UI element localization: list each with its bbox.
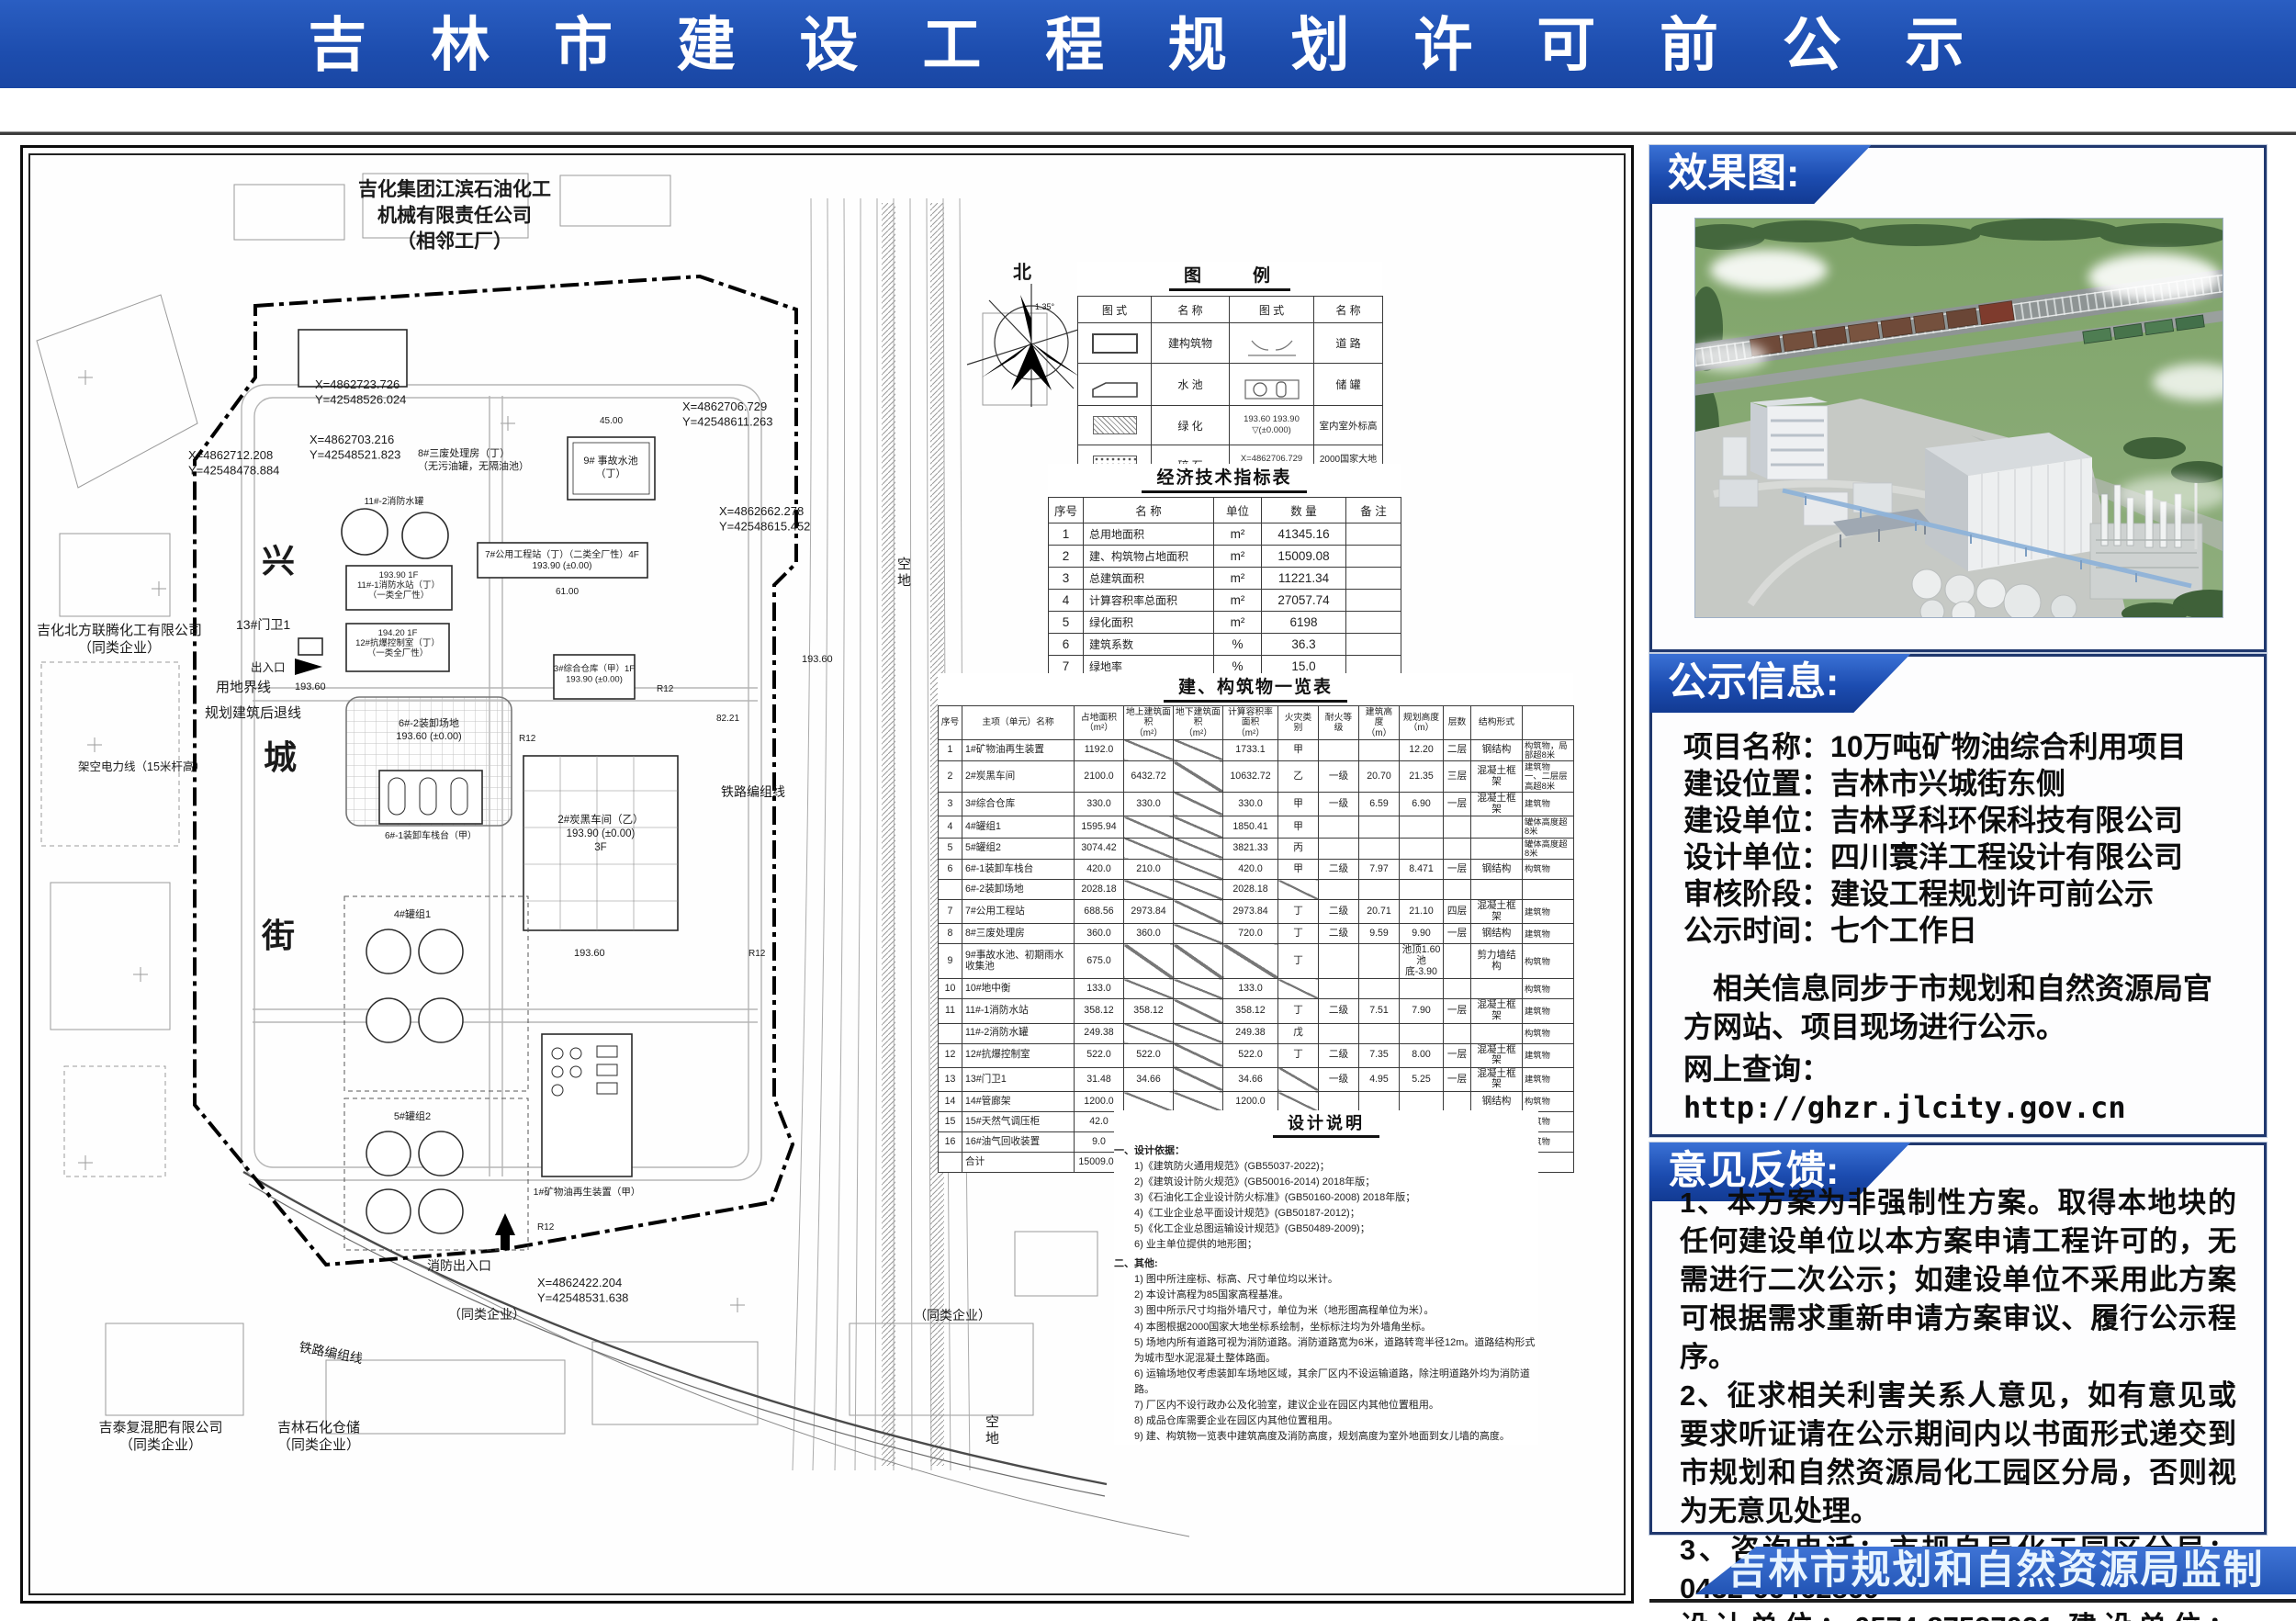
table-row: 99#事故水池、初期雨水收集池675.0丁池顶1.60 池底-3.90剪力墙结构… <box>939 944 1574 979</box>
dim-label: 61.00 <box>556 587 579 597</box>
table-cell: 6.59 <box>1359 792 1400 816</box>
design-notes: 一、设计依据： 1)《建筑防火通用规范》(GB55037-2022)；2)《建筑… <box>1114 1143 1538 1445</box>
table-cell: 一级 <box>1319 1067 1359 1091</box>
table-cell <box>1124 979 1174 999</box>
table-cell: 钢结构 <box>1471 1092 1523 1112</box>
table-cell: 1 <box>1049 523 1084 546</box>
table-cell: 建筑物 <box>1523 999 1574 1023</box>
table-cell: 720.0 <box>1223 924 1278 944</box>
column-header: 建筑高度 （m） <box>1359 706 1400 740</box>
field-label: 建设位置： <box>1683 765 1830 802</box>
column-header: 序号 <box>1049 498 1084 523</box>
rendering-illustration <box>1695 219 2223 617</box>
building-list-table: 序号主项（单元）名称占地面积 （m²）地上建筑面积 （m²）地下建筑面积 （m²… <box>938 705 1574 1173</box>
table-cell: 2973.84 <box>1124 900 1174 924</box>
greenery-symbol <box>1093 416 1137 434</box>
url-label: 网上查询： <box>1683 1053 1830 1086</box>
coordinate-label: X=4862422.204Y=42548531.638 <box>537 1276 628 1304</box>
feedback-panel: 意见反馈: 1、本方案为非强制性方案。取得本地块的任何建设单位以本方案申请工程许… <box>1649 1143 2267 1535</box>
table-cell: 一级 <box>1319 792 1359 816</box>
table-cell <box>1319 1092 1359 1112</box>
main-title-banner: 吉 林 市 建 设 工 程 规 划 许 可 前 公 示 <box>0 0 2296 88</box>
table-cell: 675.0 <box>1075 944 1124 979</box>
table-cell: 混凝土框架 <box>1471 1067 1523 1091</box>
table-cell <box>1444 816 1471 838</box>
column-header: 计算容积率面积 （m²） <box>1223 706 1278 740</box>
info-row: 设计单位： 四川寰洋工程设计有限公司 <box>1683 839 2234 875</box>
table-cell <box>939 880 962 900</box>
table-row: 4计算容积率总面积m²27057.74 <box>1049 590 1401 612</box>
table-cell <box>1124 1092 1174 1112</box>
table-cell: 二级 <box>1319 924 1359 944</box>
table-cell <box>1359 880 1400 900</box>
table-cell: 三层 <box>1444 761 1471 793</box>
building-label: 4#罐组1 <box>394 907 431 920</box>
table-cell: 14 <box>939 1092 962 1112</box>
table-cell <box>1174 1043 1223 1067</box>
table-cell: 3 <box>1049 568 1084 590</box>
coordinate-label: X=4862703.216Y=42548521.823 <box>310 433 400 461</box>
table-cell <box>1278 880 1319 900</box>
info-row: 公示时间： 七个工作日 <box>1683 912 2234 949</box>
legend-header: 名 称 <box>1152 297 1230 323</box>
column-header: 名 称 <box>1084 498 1214 523</box>
table-cell: 钢结构 <box>1471 860 1523 880</box>
elevation-symbol: 193.60 193.90 ▽(±0.000) <box>1232 414 1311 436</box>
tank-symbol <box>1244 377 1300 401</box>
table-cell <box>1346 568 1401 590</box>
building-label: 8#三废处理房（丁）（无污油罐，无隔油池） <box>418 446 529 472</box>
table-cell: 2973.84 <box>1223 900 1278 924</box>
table-cell <box>1346 590 1401 612</box>
table-cell: 358.12 <box>1124 999 1174 1023</box>
table-cell: 建筑物 <box>1523 1043 1574 1067</box>
table-row: 88#三废处理房360.0360.0720.0丁二级9.599.90一层钢结构建… <box>939 924 1574 944</box>
info-panel: 公示信息: 项目名称： 10万吨矿物油综合利用项目 建设位置： 吉林市兴城街东侧… <box>1649 654 2267 1137</box>
column-header: 序号 <box>939 706 962 740</box>
table-row: 2建、构筑物占地面积m²15009.08 <box>1049 546 1401 568</box>
table-cell <box>939 1023 962 1043</box>
table-cell: 建筑物 一、二层层高超8米 <box>1523 761 1574 793</box>
table-cell <box>1319 816 1359 838</box>
table-cell <box>1124 838 1174 859</box>
table-cell: 20.70 <box>1359 761 1400 793</box>
table-cell <box>1471 838 1523 859</box>
table-cell: 混凝土框架 <box>1471 999 1523 1023</box>
table-cell: 一级 <box>1319 761 1359 793</box>
table-cell: 建筑物 <box>1523 924 1574 944</box>
table-cell: 1192.0 <box>1075 739 1124 760</box>
table-cell <box>1124 816 1174 838</box>
table-cell: 10632.72 <box>1223 761 1278 793</box>
table-cell: 5 <box>1049 612 1084 634</box>
column-header: 结构形式 <box>1471 706 1523 740</box>
road-symbol <box>1244 337 1300 359</box>
table-cell: 11#-2消防水罐 <box>962 1023 1075 1043</box>
table-cell: 330.0 <box>1223 792 1278 816</box>
legend-title: 图 例 <box>1077 262 1382 287</box>
table-cell <box>1359 1092 1400 1112</box>
table-cell: 8.471 <box>1400 860 1444 880</box>
table-row: 1212#抗爆控制室522.0522.0522.0丁二级7.358.00一层混凝… <box>939 1043 1574 1067</box>
table-cell <box>1174 860 1223 880</box>
table-cell: 4 <box>1049 590 1084 612</box>
table-cell <box>1400 1023 1444 1043</box>
legend-block: 图 例 图 式 名 称 图 式 名 称 建构筑物 <box>1077 262 1382 485</box>
table-cell: 建筑物 <box>1523 900 1574 924</box>
north-compass <box>967 284 1096 407</box>
building-table-title: 建、构筑物一览表 <box>938 673 1573 698</box>
table-cell: 34.66 <box>1223 1067 1278 1091</box>
table-cell <box>1400 880 1444 900</box>
table-cell <box>1124 944 1174 979</box>
list-item: 2) 本设计高程为85国家高程基准。 <box>1114 1288 1538 1303</box>
table-row: 1010#地中衡133.0133.0构筑物 <box>939 979 1574 999</box>
table-cell: 7.51 <box>1359 999 1400 1023</box>
table-cell <box>1444 979 1471 999</box>
neighbor-factory-label: 吉化集团江滨石油化工机械有限责任公司（相邻工厂） <box>358 178 551 253</box>
table-cell <box>1174 816 1223 838</box>
table-cell: 20.71 <box>1359 900 1400 924</box>
table-cell: 249.38 <box>1075 1023 1124 1043</box>
table-cell <box>1319 944 1359 979</box>
table-cell: 13#门卫1 <box>962 1067 1075 1091</box>
table-cell: m² <box>1214 523 1262 546</box>
table-row: 66#-1装卸车栈台420.0210.0420.0甲二级7.978.471一层钢… <box>939 860 1574 880</box>
field-value: 吉林孚科环保科技有限公司 <box>1830 802 2183 839</box>
table-cell: 4 <box>939 816 962 838</box>
footer-underline <box>1649 1599 2296 1603</box>
table-cell: 一层 <box>1444 792 1471 816</box>
table-cell <box>1359 944 1400 979</box>
table-cell: 丁 <box>1278 944 1319 979</box>
dim-label: 82.21 <box>716 714 739 724</box>
table-cell: m² <box>1214 546 1262 568</box>
table-cell <box>1359 739 1400 760</box>
table-cell: 41345.16 <box>1262 523 1346 546</box>
table-cell: 15009.08 <box>1262 546 1346 568</box>
table-cell: 330.0 <box>1124 792 1174 816</box>
table-cell: m² <box>1214 590 1262 612</box>
table-cell: 3821.33 <box>1223 838 1278 859</box>
fire-exit-label: 消防出入口 <box>427 1258 491 1273</box>
table-cell: 12#抗爆控制室 <box>962 1043 1075 1067</box>
column-header: 规划高度 （m） <box>1400 706 1444 740</box>
table-cell: 7 <box>939 900 962 924</box>
field-label: 审核阶段： <box>1683 875 1830 912</box>
table-cell <box>1346 634 1401 656</box>
table-cell <box>1278 1092 1319 1112</box>
table-cell: 池顶1.60 池底-3.90 <box>1400 944 1444 979</box>
company-label: 吉林石化仓储（同类企业） <box>277 1420 360 1453</box>
table-cell: 11#-1消防水站 <box>962 999 1075 1023</box>
table-cell: 一层 <box>1444 924 1471 944</box>
table-cell <box>1444 944 1471 979</box>
notes-heading: 二、其他: <box>1114 1256 1538 1272</box>
list-item: 9) 建、构筑物一览表中建筑高度及消防高度，规划高度为室外地面到女儿墙的高度。 <box>1114 1429 1538 1445</box>
north-angle: 1.35° <box>1035 302 1055 311</box>
table-cell <box>1174 944 1223 979</box>
table-cell: 210.0 <box>1124 860 1174 880</box>
table-cell: 丁 <box>1278 1043 1319 1067</box>
table-cell: 14#管廊架 <box>962 1092 1075 1112</box>
table-cell: 9#事故水池、初期雨水收集池 <box>962 944 1075 979</box>
table-cell: 12.20 <box>1400 739 1444 760</box>
dim-label: R12 <box>748 949 766 959</box>
coordinate-label: X=4862662.278Y=42548615.452 <box>719 504 810 533</box>
table-cell: 6.90 <box>1400 792 1444 816</box>
coordinate-label: X=4862706.729Y=42548611.263 <box>682 400 772 428</box>
info-row: 建设单位： 吉林孚科环保科技有限公司 <box>1683 802 2234 839</box>
field-label: 设计单位： <box>1683 839 1830 875</box>
table-cell: 16 <box>939 1132 962 1153</box>
table-cell: 2100.0 <box>1075 761 1124 793</box>
gate-label: 13#门卫1 <box>236 617 290 632</box>
list-item: 6) 运输场地仅考虑装卸车场地区域，其余厂区内不设运输道路，除注明道路外均为消防… <box>1114 1367 1538 1398</box>
table-cell: 1#矿物油再生装置 <box>962 739 1075 760</box>
table-cell <box>1124 1023 1174 1043</box>
street-char: 城 <box>264 738 297 776</box>
table-cell <box>939 1153 962 1173</box>
table-row: 5绿化面积m²6198 <box>1049 612 1401 634</box>
coordinate-label: X=4862723.726Y=42548526.024 <box>315 377 406 406</box>
table-cell: 522.0 <box>1223 1043 1278 1067</box>
similar-enterprise-label: （同类企业） <box>448 1307 525 1322</box>
table-cell: 34.66 <box>1124 1067 1174 1091</box>
table-cell: 戊 <box>1278 1023 1319 1043</box>
table-cell: 二层 <box>1444 739 1471 760</box>
table-cell: 9 <box>939 944 962 979</box>
table-cell: 二级 <box>1319 1043 1359 1067</box>
table-cell: 总建筑面积 <box>1084 568 1214 590</box>
list-item: 6) 业主单位提供的地形图； <box>1114 1237 1538 1253</box>
table-cell: 二级 <box>1319 860 1359 880</box>
entrance-label: 出入口 <box>251 661 286 674</box>
notes-heading: 一、设计依据： <box>1114 1143 1538 1159</box>
query-url-link[interactable]: http://ghzr.jlcity.gov.cn <box>1683 1090 2126 1125</box>
table-row: 3总建筑面积m²11221.34 <box>1049 568 1401 590</box>
table-cell <box>1400 838 1444 859</box>
table-cell: 甲 <box>1278 739 1319 760</box>
column-header: 占地面积 （m²） <box>1075 706 1124 740</box>
table-row: 55#罐组23074.423821.33丙罐体高度超8米 <box>939 838 1574 859</box>
table-cell: 358.12 <box>1075 999 1124 1023</box>
table-cell <box>1174 838 1223 859</box>
field-value: 四川寰洋工程设计有限公司 <box>1830 839 2183 875</box>
table-cell <box>1523 880 1574 900</box>
table-cell: 522.0 <box>1124 1043 1174 1067</box>
table-cell: 12 <box>939 1043 962 1067</box>
building-label: 11#-2消防水罐 <box>365 495 424 507</box>
column-header: 火灾类别 <box>1278 706 1319 740</box>
dim-label: R12 <box>657 684 674 694</box>
table-cell: 16#油气回收装置 <box>962 1132 1075 1153</box>
table-cell: 计算容积率总面积 <box>1084 590 1214 612</box>
table-cell: 3#综合仓库 <box>962 792 1075 816</box>
table-cell: 133.0 <box>1075 979 1124 999</box>
dim-label: 193.60 <box>295 681 326 692</box>
column-header: 耐火等级 <box>1319 706 1359 740</box>
table-cell: m² <box>1214 612 1262 634</box>
table-cell <box>1174 792 1223 816</box>
table-cell: 一层 <box>1444 999 1471 1023</box>
table-cell: 1 <box>939 739 962 760</box>
table-cell: 4#罐组1 <box>962 816 1075 838</box>
railway-label: 铁路编组线 <box>721 784 785 799</box>
field-value: 建设工程规划许可前公示 <box>1830 875 2154 912</box>
table-row: 77#公用工程站688.562973.842973.84丁二级20.7121.1… <box>939 900 1574 924</box>
legend-header: 名 称 <box>1314 297 1383 323</box>
table-cell: 133.0 <box>1223 979 1278 999</box>
table-cell: 9.90 <box>1400 924 1444 944</box>
table-cell: 混凝土框架 <box>1471 792 1523 816</box>
table-cell <box>1124 739 1174 760</box>
table-cell <box>1319 1023 1359 1043</box>
table-cell <box>1319 979 1359 999</box>
table-cell: 建、构筑物占地面积 <box>1084 546 1214 568</box>
table-cell: 2028.18 <box>1075 880 1124 900</box>
north-label: 北 <box>1013 262 1031 283</box>
table-cell: 甲 <box>1278 816 1319 838</box>
list-item: 2)《建筑设计防火规范》(GB50016-2014) 2018年版； <box>1114 1175 1538 1190</box>
table-cell: 7.90 <box>1400 999 1444 1023</box>
boundary-label: 用地界线 <box>216 680 271 695</box>
legend-table: 图 式 名 称 图 式 名 称 建构筑物 道 路 <box>1077 296 1383 485</box>
table-cell: 11 <box>939 999 962 1023</box>
table-cell <box>1319 739 1359 760</box>
table-cell: 甲 <box>1278 860 1319 880</box>
table-cell <box>1444 838 1471 859</box>
economic-indicator-block: 经济技术指标表 序号名 称单位数 量备 注1总用地面积m²41345.162建、… <box>1048 464 1401 700</box>
table-cell: 二级 <box>1319 900 1359 924</box>
building-list-block: 建、构筑物一览表 序号主项（单元）名称占地面积 （m²）地上建筑面积 （m²）地… <box>938 673 1573 1173</box>
table-cell: 522.0 <box>1075 1043 1124 1067</box>
table-cell: 27057.74 <box>1262 590 1346 612</box>
legend-header: 图 式 <box>1078 297 1152 323</box>
list-item: 1)《建筑防火通用规范》(GB55037-2022)； <box>1114 1159 1538 1175</box>
table-cell <box>1174 924 1223 944</box>
list-item: 3) 图中所示尺寸均指外墙尺寸，单位为米（地形图高程单位为米）。 <box>1114 1303 1538 1319</box>
table-cell: 15#天然气调压柜 <box>962 1112 1075 1132</box>
table-cell <box>1359 838 1400 859</box>
table-cell <box>1124 880 1174 900</box>
table-cell: 构筑物 <box>1523 979 1574 999</box>
company-label: 吉化北方联腾化工有限公司（同类企业） <box>37 623 202 656</box>
site-plan-panel: 吉化集团江滨石油化工机械有限责任公司（相邻工厂） 兴 城 街 用地界线 规划建筑… <box>20 145 1634 1604</box>
table-cell: 构筑物 <box>1523 860 1574 880</box>
table-cell: 8.00 <box>1400 1043 1444 1067</box>
legend-name: 建构筑物 <box>1152 323 1230 364</box>
table-cell: 5.25 <box>1400 1067 1444 1091</box>
field-label: 公示时间： <box>1683 912 1830 949</box>
table-cell <box>1359 1023 1400 1043</box>
table-cell: 混凝土框架 <box>1471 900 1523 924</box>
economic-indicator-table: 序号名 称单位数 量备 注1总用地面积m²41345.162建、构筑物占地面积m… <box>1048 497 1401 700</box>
table-cell <box>1346 612 1401 634</box>
table-cell: 420.0 <box>1075 860 1124 880</box>
table-row: 33#综合仓库330.0330.0330.0甲一级6.596.90一层混凝土框架… <box>939 792 1574 816</box>
info-row: 建设位置： 吉林市兴城街东侧 <box>1683 765 2234 802</box>
table-cell: 丁 <box>1278 924 1319 944</box>
table-cell: 6#-2装卸场地 <box>962 880 1075 900</box>
online-query-line: 网上查询：http://ghzr.jlcity.gov.cn <box>1683 1050 2234 1127</box>
table-cell <box>1471 1023 1523 1043</box>
table-row: 1总用地面积m²41345.16 <box>1049 523 1401 546</box>
dim-label: R12 <box>519 734 536 744</box>
table-row: 1313#门卫131.4834.6634.66一级4.955.25一层混凝土框架… <box>939 1067 1574 1091</box>
table-cell: 2 <box>1049 546 1084 568</box>
table-cell: 420.0 <box>1223 860 1278 880</box>
table-cell <box>1278 979 1319 999</box>
table-row: 6#-2装卸场地2028.182028.18 <box>939 880 1574 900</box>
column-header: 单位 <box>1214 498 1262 523</box>
table-cell: 1200.0 <box>1075 1092 1124 1112</box>
info-row: 项目名称： 10万吨矿物油综合利用项目 <box>1683 728 2234 765</box>
street-char: 街 <box>261 917 295 954</box>
legend-name: 道 路 <box>1314 323 1383 364</box>
table-cell <box>1174 880 1223 900</box>
table-cell: 罐体高度超8米 <box>1523 838 1574 859</box>
table-cell: 合计 <box>962 1153 1075 1173</box>
table-cell <box>1174 1092 1223 1112</box>
table-cell: 一层 <box>1444 860 1471 880</box>
table-row: 22#炭黑车间2100.06432.7210632.72乙一级20.7021.3… <box>939 761 1574 793</box>
table-cell: 21.10 <box>1400 900 1444 924</box>
railway-label: 铁路编组线 <box>298 1339 364 1366</box>
list-item: 1) 图中所注座标、标高、尺寸单位均以米计。 <box>1114 1272 1538 1288</box>
table-cell <box>1359 816 1400 838</box>
table-cell: 丁 <box>1278 900 1319 924</box>
table-cell <box>1444 1023 1471 1043</box>
table-cell: 358.12 <box>1223 999 1278 1023</box>
table-cell: 5#罐组2 <box>962 838 1075 859</box>
table-cell: 13 <box>939 1067 962 1091</box>
dim-label: 193.60 <box>802 654 833 665</box>
table-row: 11#-2消防水罐249.38249.38戊构筑物 <box>939 1023 1574 1043</box>
notes-list: 1)《建筑防火通用规范》(GB55037-2022)；2)《建筑设计防火规范》(… <box>1114 1159 1538 1253</box>
building-label: 6#-1装卸车栈台（甲） <box>385 829 477 841</box>
table-cell: 10#地中衡 <box>962 979 1075 999</box>
list-item: 1、本方案为非强制性方案。取得本地块的任何建设单位以本方案申请工程许可的，无需进… <box>1680 1184 2236 1377</box>
design-notes-title: 设计说明 <box>1114 1110 1538 1134</box>
building-label: 6#-2装卸场地193.60 (±0.00) <box>396 716 461 742</box>
table-cell: 丁 <box>1278 999 1319 1023</box>
table-cell: 4.95 <box>1359 1067 1400 1091</box>
table-cell <box>1278 1067 1319 1091</box>
table-cell <box>1174 900 1223 924</box>
company-label: 吉泰复混肥有限公司（同类企业） <box>98 1419 222 1453</box>
table-cell: 6#-1装卸车栈台 <box>962 860 1075 880</box>
field-label: 建设单位： <box>1683 802 1830 839</box>
render-badge: 效果图: <box>1649 145 1871 204</box>
table-cell: 5 <box>939 838 962 859</box>
column-header <box>1523 706 1574 740</box>
table-cell: 罐体高度超8米 <box>1523 816 1574 838</box>
table-cell <box>1174 1067 1223 1091</box>
table-cell: 建筑物 <box>1523 1067 1574 1091</box>
table-cell <box>1400 979 1444 999</box>
table-cell: 建筑物 <box>1523 792 1574 816</box>
legend-name: 室内室外标高 <box>1314 406 1383 445</box>
table-cell <box>1319 880 1359 900</box>
table-cell: 钢结构 <box>1471 924 1523 944</box>
render-panel: 效果图: <box>1649 145 2267 652</box>
table-row: 6建筑系数%36.3 <box>1049 634 1401 656</box>
building-label: 1#矿物油再生装置（甲） <box>534 1186 641 1198</box>
list-item: 5)《化工企业总图运输设计规范》(GB50489-2009)； <box>1114 1221 1538 1237</box>
table-cell <box>1400 1092 1444 1112</box>
building-symbol <box>1092 333 1138 354</box>
